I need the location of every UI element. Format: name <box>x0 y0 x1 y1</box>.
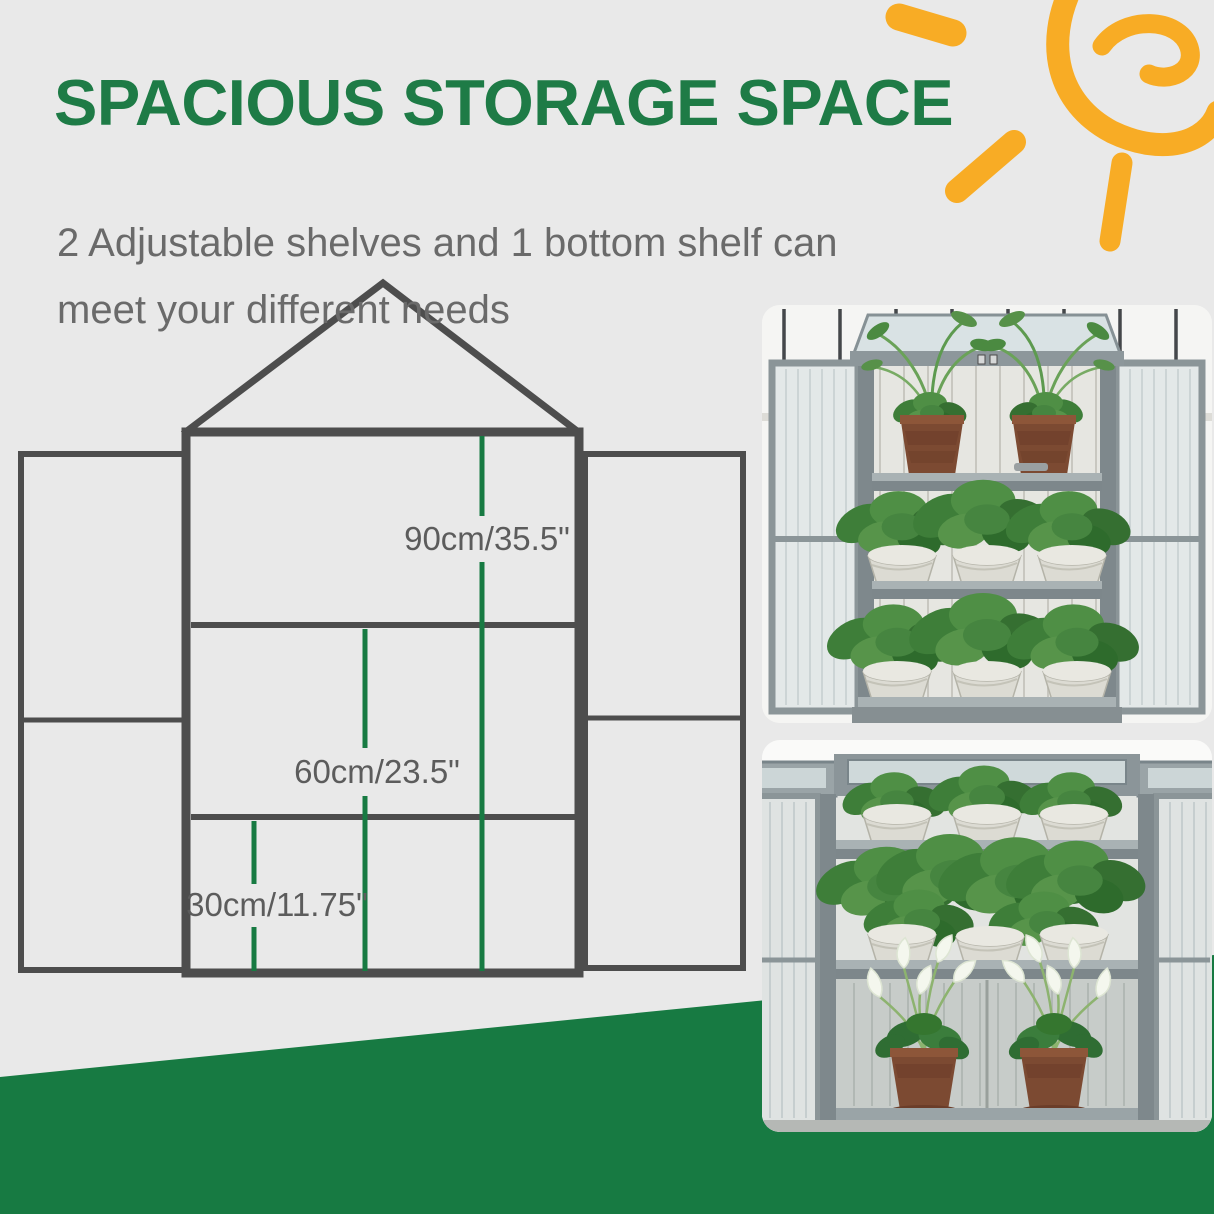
photo-greenhouse-shelves-image <box>762 305 1212 723</box>
subtitle-line-1: 2 Adjustable shelves and 1 bottom shelf … <box>57 210 838 277</box>
measurement-label-90cm: 90cm/35.5" <box>404 520 570 558</box>
photo2-ground <box>762 1120 1212 1132</box>
page-title: SPACIOUS STORAGE SPACE <box>54 70 953 135</box>
measurement-label-30cm: 30cm/11.75" <box>186 886 368 924</box>
photo2-left-door <box>762 796 818 1124</box>
photo2-right-door <box>1156 796 1212 1124</box>
measurement-label-60cm: 60cm/23.5" <box>294 753 460 791</box>
photo-greenhouse-shelves <box>762 305 1212 723</box>
photo-greenhouse-flowers <box>762 740 1212 1132</box>
page-subtitle: 2 Adjustable shelves and 1 bottom shelf … <box>57 210 838 344</box>
subtitle-line-2: meet your different needs <box>57 277 838 344</box>
photo2-top-shelf-plants <box>837 766 1127 849</box>
greenhouse-outline-diagram <box>21 283 743 973</box>
diagram-right-door <box>585 454 743 968</box>
page: SPACIOUS STORAGE SPACE 2 Adjustable shel… <box>0 0 1214 1214</box>
diagram-left-door <box>21 454 185 970</box>
photo-greenhouse-flowers-image <box>762 740 1212 1132</box>
